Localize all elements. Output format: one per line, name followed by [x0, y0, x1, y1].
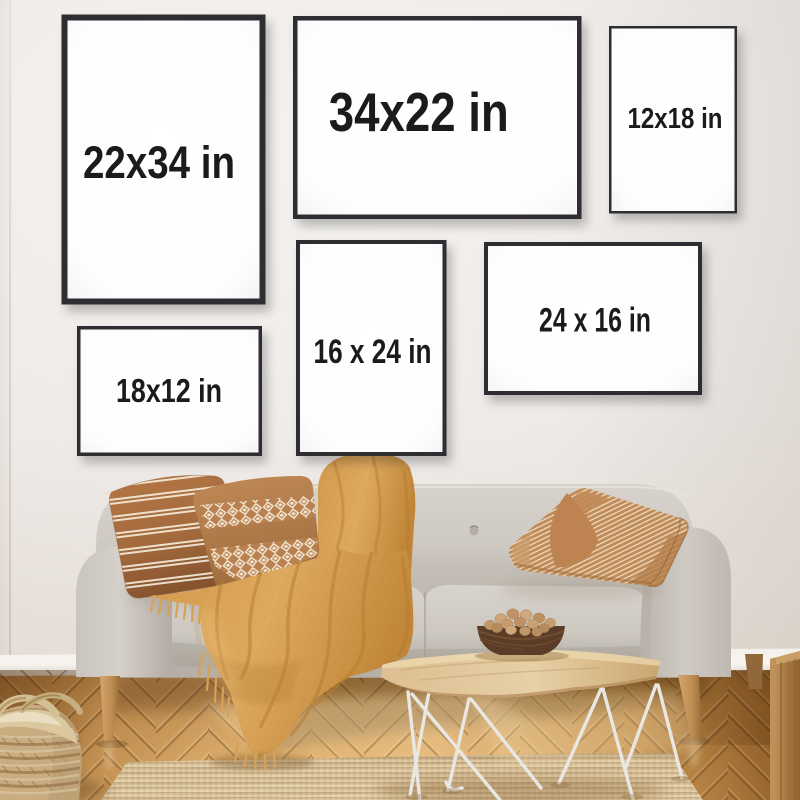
svg-text:12x18 in: 12x18 in [628, 103, 723, 135]
svg-text:16 x 24 in: 16 x 24 in [314, 333, 432, 371]
svg-text:18x12 in: 18x12 in [116, 372, 222, 409]
svg-text:24 x 16 in: 24 x 16 in [539, 302, 651, 340]
svg-text:22x34 in: 22x34 in [83, 137, 235, 188]
svg-text:34x22 in: 34x22 in [329, 81, 509, 143]
